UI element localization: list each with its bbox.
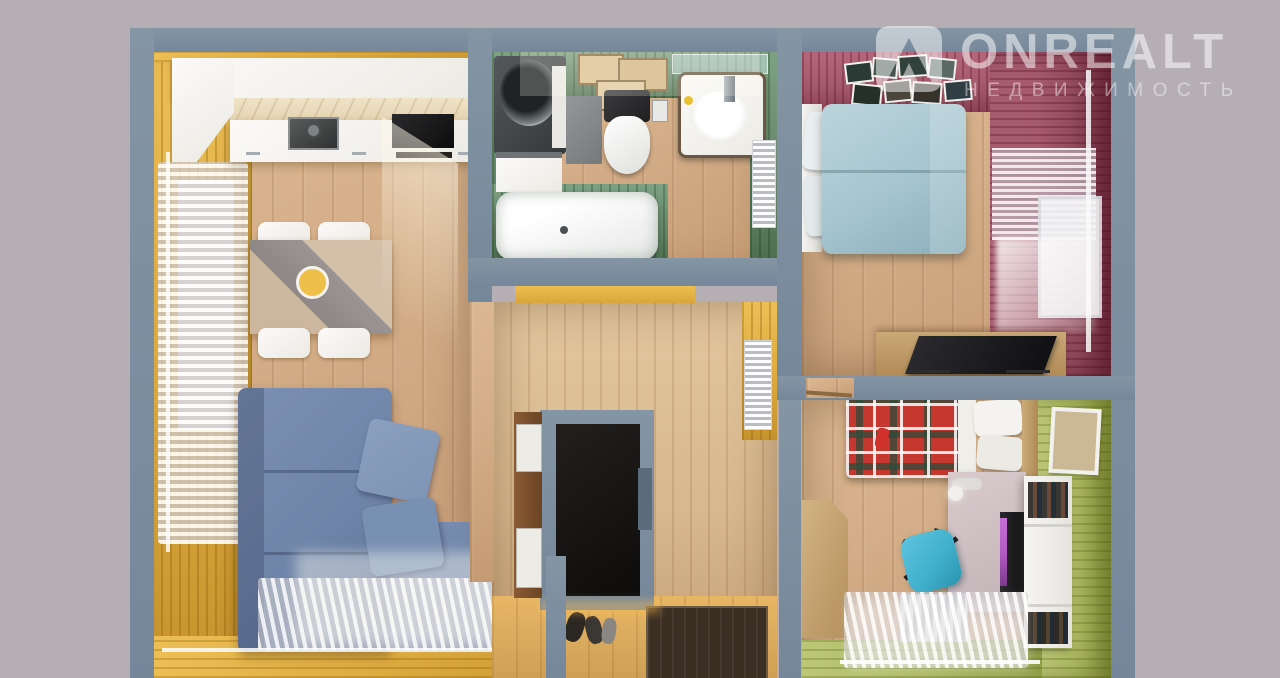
left-window-curtain	[158, 162, 248, 544]
bathroom-light-glow	[520, 52, 760, 96]
bath-cabinet	[496, 152, 562, 192]
shelf-divider	[1024, 604, 1072, 607]
desk-lamp	[948, 486, 963, 501]
bottom-curtain-rod	[162, 648, 548, 652]
hall-radiator	[744, 340, 772, 430]
watermark-brand: ONREALT	[960, 24, 1228, 80]
hall-wardrobe-interior	[556, 424, 640, 596]
bathtub	[496, 192, 658, 260]
tv-stand	[1006, 370, 1050, 373]
towel-radiator	[752, 140, 776, 228]
wardrobe-door-edge	[638, 468, 652, 530]
shelf-divider	[1024, 524, 1072, 527]
wall-entry-stub	[546, 556, 566, 678]
outer-wall-right	[1111, 28, 1135, 678]
left-curtain-rod	[166, 152, 170, 552]
kids-wardrobe	[802, 500, 848, 638]
kids-window-glow	[848, 600, 1028, 670]
fruit-plate	[296, 266, 329, 299]
books	[1028, 482, 1068, 518]
toilet-side-cabinet	[566, 96, 602, 164]
rubber-duck	[684, 96, 693, 105]
watermark-logo-icon	[876, 26, 942, 92]
monitor-screen	[1000, 518, 1007, 586]
sofa-pillow	[355, 417, 441, 504]
kids-pillow	[976, 434, 1025, 472]
outer-wall-left	[130, 28, 154, 678]
bedroom-window-glow	[996, 238, 1096, 332]
dining-chair	[318, 328, 370, 358]
hall-floor-strip	[470, 302, 494, 582]
entry-doormat	[646, 606, 768, 678]
tv	[905, 336, 1057, 374]
wall-corridor-kids	[779, 400, 801, 678]
drawer-handle	[246, 152, 260, 155]
toilet-bowl	[604, 116, 650, 174]
watermark: ONREALT НЕДВИЖИМОСТЬ	[876, 24, 1246, 108]
picture-frame	[844, 60, 874, 84]
wall-bedroom-left	[777, 28, 802, 400]
bedroom-curtain-rod	[1086, 70, 1091, 352]
toilet-paper-holder	[652, 100, 668, 122]
tv-stand	[906, 370, 950, 373]
blanket-drape	[930, 104, 966, 254]
wall-bathroom-bottom	[468, 258, 802, 286]
kids-wall-picture	[1048, 407, 1101, 476]
watermark-subtitle: НЕДВИЖИМОСТЬ	[964, 80, 1243, 102]
floorplan-scene: ONREALT НЕДВИЖИМОСТЬ	[0, 0, 1280, 678]
bathtub-drain	[560, 226, 568, 234]
kitchen-faucet	[306, 123, 321, 138]
shoe-cabinet-drawer	[516, 424, 542, 472]
sink-basin	[690, 92, 748, 140]
bathroom-door-glow	[515, 286, 695, 303]
kids-bed-headboard	[1022, 396, 1038, 476]
books	[1028, 612, 1068, 644]
kids-bed-plaid-blanket	[846, 396, 962, 478]
kids-pillow	[973, 398, 1023, 437]
drawer-handle	[352, 152, 366, 155]
dining-chair	[258, 328, 310, 358]
shoe-cabinet-drawer	[516, 528, 542, 588]
